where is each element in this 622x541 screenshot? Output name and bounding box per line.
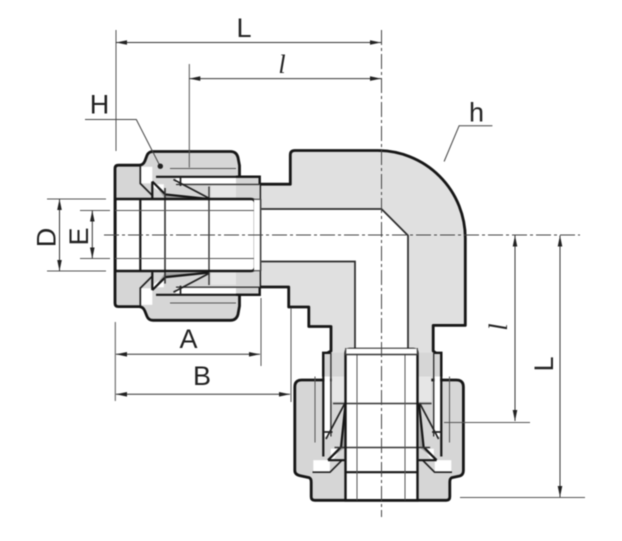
svg-text:D: D [32,228,62,248]
svg-text:l: l [278,50,285,79]
svg-text:l: l [484,323,513,330]
svg-text:L: L [236,13,251,43]
svg-text:E: E [64,227,94,245]
svg-text:L: L [529,356,559,371]
svg-text:H: H [90,90,110,120]
svg-text:A: A [179,324,197,354]
svg-text:B: B [193,361,211,391]
svg-text:h: h [469,98,484,128]
